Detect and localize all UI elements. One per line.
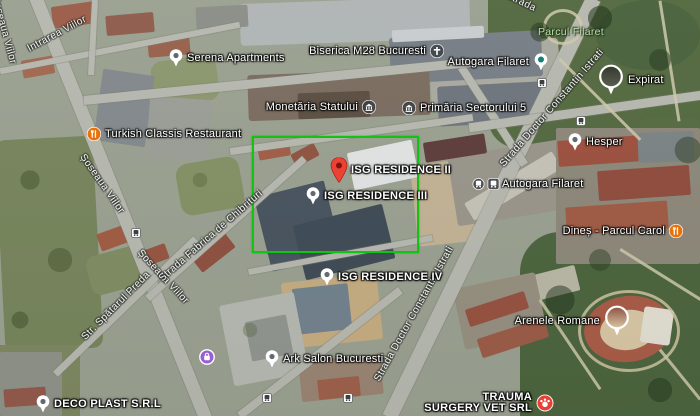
transit-stop-icon[interactable] xyxy=(576,116,586,126)
generic-poi-icon[interactable] xyxy=(169,49,183,68)
poi-label[interactable]: Monetăria Statului xyxy=(266,101,358,113)
generic-poi-icon[interactable] xyxy=(306,187,320,206)
map-building xyxy=(597,165,691,201)
transit-stop-icon[interactable] xyxy=(262,393,272,403)
transit-pin-icon[interactable] xyxy=(534,53,548,72)
generic-poi-icon[interactable] xyxy=(568,133,582,152)
red-pin-icon[interactable] xyxy=(331,158,348,183)
poi-label[interactable]: Primăria Sectorului 5 xyxy=(420,102,526,114)
shop-icon[interactable] xyxy=(199,349,215,365)
satellite-map[interactable]: Serena ApartmentsTurkish Classis Restaur… xyxy=(0,0,700,416)
poi-label[interactable]: Ark Salon Bucuresti xyxy=(283,353,383,365)
poi-label[interactable]: Expirat xyxy=(628,74,664,86)
street-label: Șoseaua Viilor xyxy=(0,0,18,65)
poi-label[interactable]: Arenele Romane xyxy=(515,315,600,327)
generic-poi-icon[interactable] xyxy=(265,350,279,369)
poi-label[interactable]: Serena Apartments xyxy=(187,52,285,64)
bus-badges-icon[interactable] xyxy=(473,178,500,190)
park-label: Parcul Filaret xyxy=(538,26,604,38)
map-building xyxy=(637,131,694,163)
photo-pin-icon[interactable] xyxy=(605,306,630,337)
poi-label-line: SURGERY VET SRL xyxy=(424,403,532,414)
map-building xyxy=(292,283,353,335)
poi-label[interactable]: Biserica M28 Bucuresti xyxy=(309,45,426,57)
poi-label[interactable]: ISG RESIDENCE III xyxy=(324,190,428,202)
map-park xyxy=(596,0,700,70)
poi-label[interactable]: Turkish Classis Restaurant xyxy=(105,128,241,140)
transit-stop-icon[interactable] xyxy=(131,228,141,238)
transit-stop-icon[interactable] xyxy=(343,393,353,403)
church-icon[interactable] xyxy=(430,44,444,58)
poi-label[interactable]: Autogara Filaret xyxy=(448,56,529,68)
restaurant-icon[interactable] xyxy=(669,224,683,238)
poi-label[interactable]: TRAUMASURGERY VET SRL xyxy=(424,392,532,414)
generic-poi-icon[interactable] xyxy=(36,395,50,414)
government-icon[interactable] xyxy=(402,101,416,115)
generic-poi-icon[interactable] xyxy=(320,268,334,287)
photo-pin-icon[interactable] xyxy=(599,65,624,96)
poi-label[interactable]: ISG RESIDENCE IV xyxy=(338,271,442,283)
poi-label[interactable]: Dineș - Parcul Carol xyxy=(563,225,665,237)
poi-label[interactable]: DECO PLAST S.R.L xyxy=(54,398,161,410)
map-building xyxy=(105,12,155,36)
restaurant-icon[interactable] xyxy=(87,127,101,141)
vet-icon[interactable] xyxy=(537,395,554,412)
poi-label[interactable]: Hesper xyxy=(586,136,623,148)
poi-label[interactable]: ISG RESIDENCE II xyxy=(351,164,451,176)
poi-label[interactable]: Autogara Filaret xyxy=(502,178,583,190)
government-icon[interactable] xyxy=(362,100,376,114)
transit-stop-icon[interactable] xyxy=(537,78,547,88)
